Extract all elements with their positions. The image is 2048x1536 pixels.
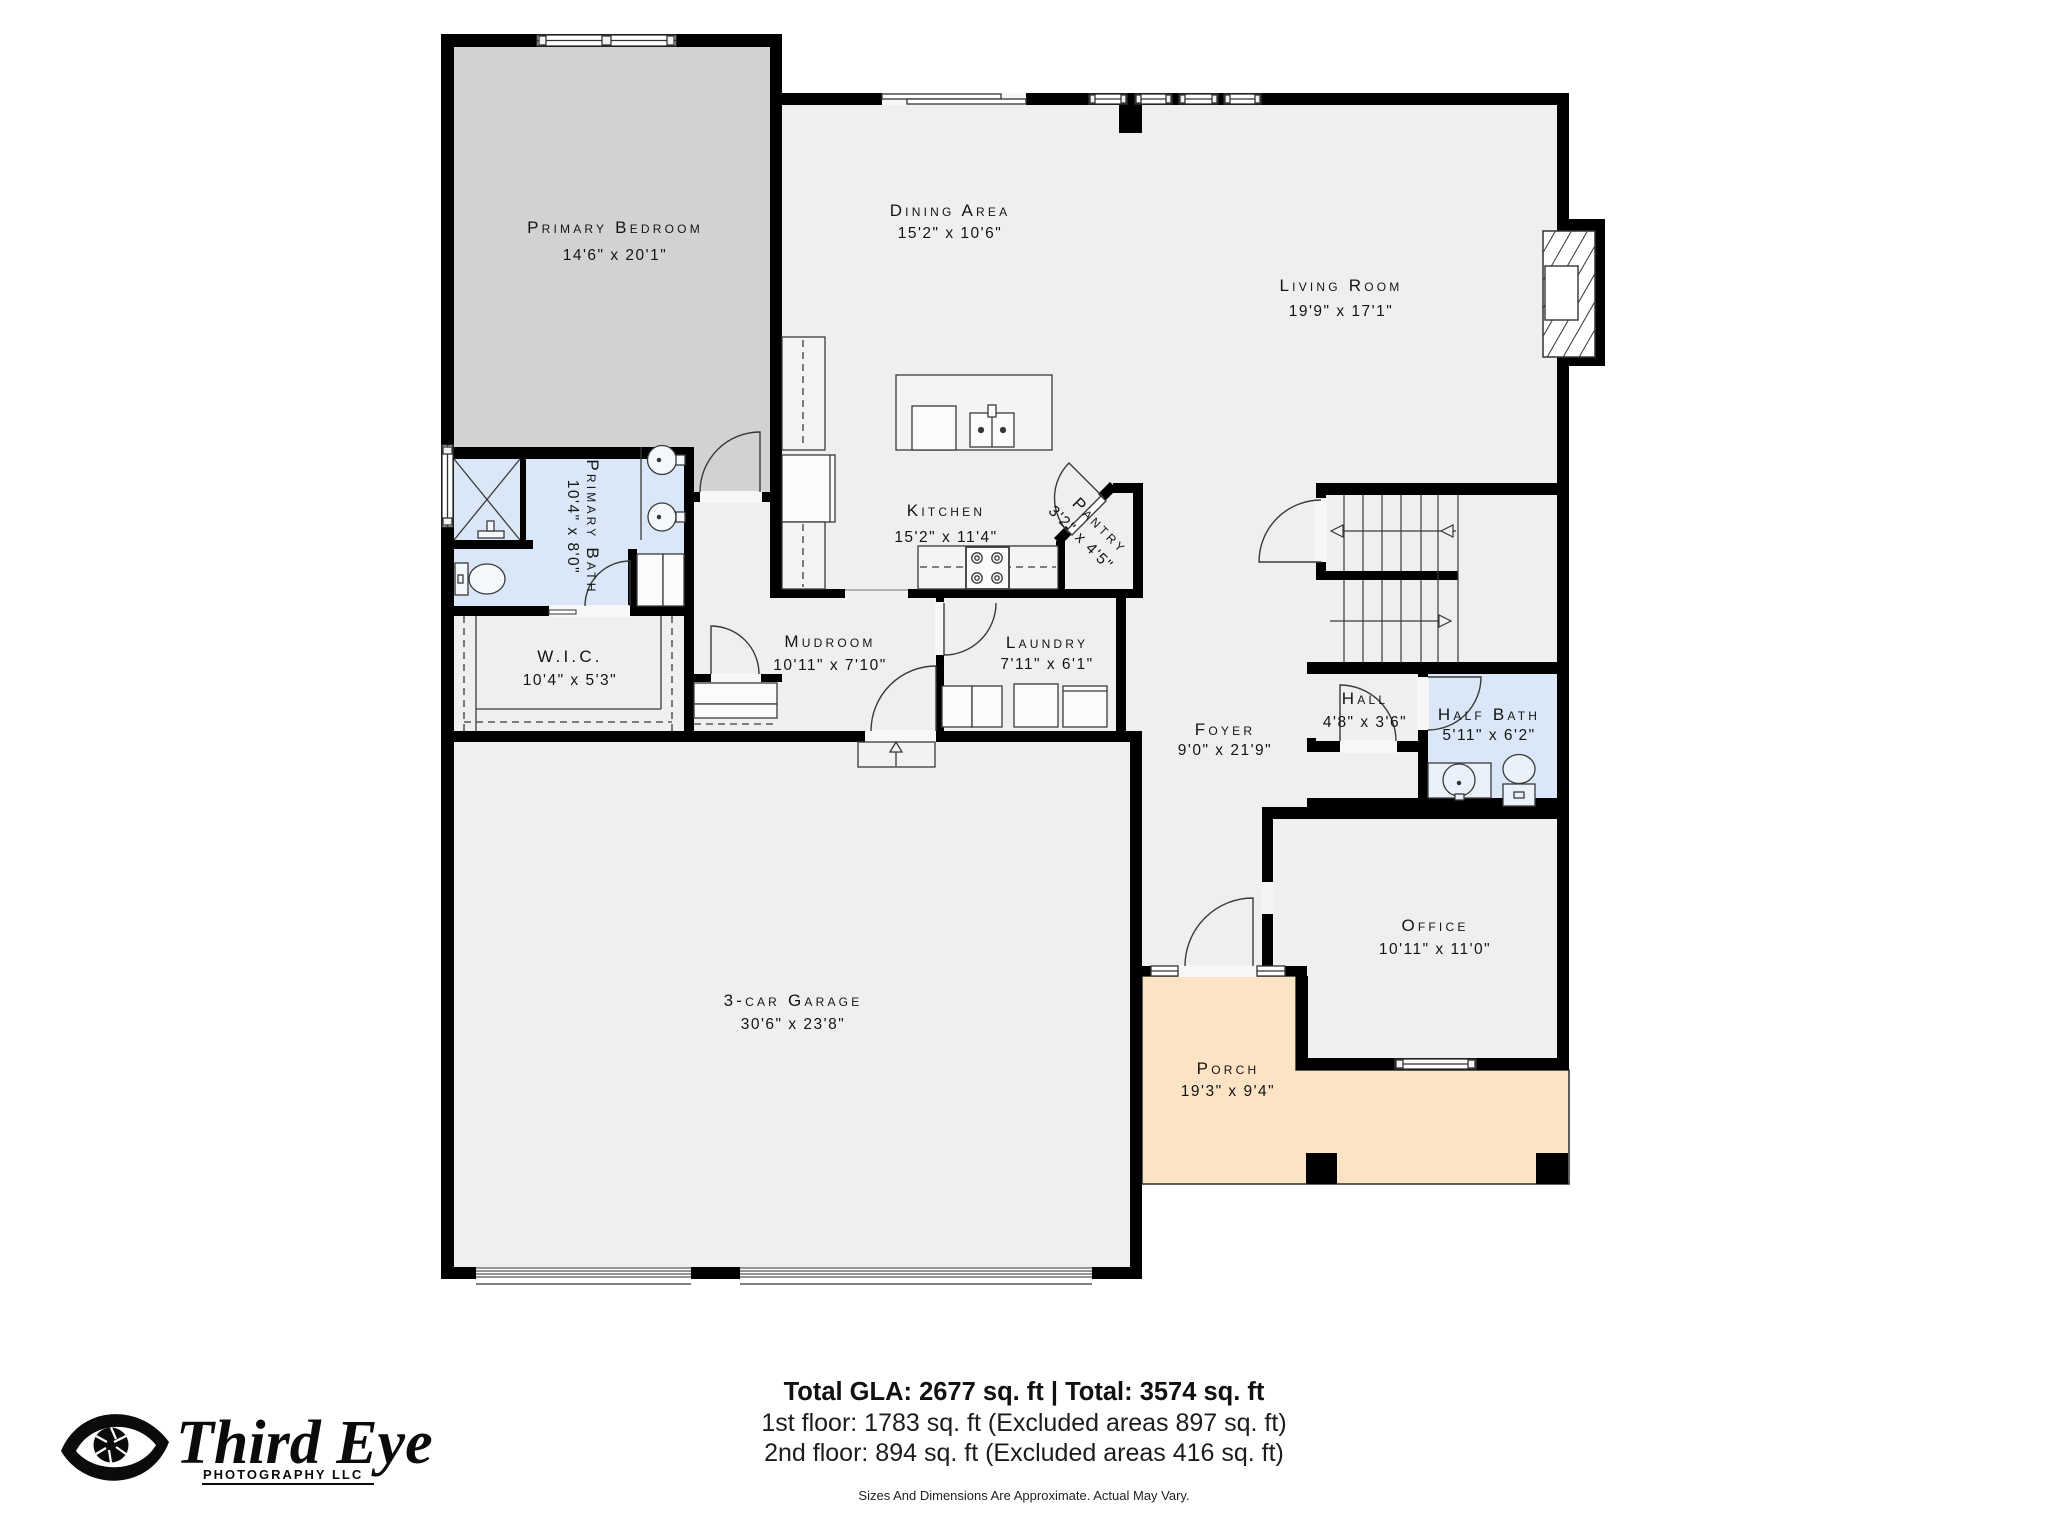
svg-text:7'11" x 6'1": 7'11" x 6'1": [1000, 656, 1093, 673]
svg-text:Sizes And Dimensions Are Appro: Sizes And Dimensions Are Approximate. Ac…: [858, 1488, 1189, 1503]
svg-text:Porch: Porch: [1197, 1059, 1260, 1078]
svg-text:PHOTOGRAPHY LLC: PHOTOGRAPHY LLC: [203, 1467, 363, 1482]
svg-text:9'0" x 21'9": 9'0" x 21'9": [1178, 742, 1272, 759]
svg-text:Primary Bath: Primary Bath: [583, 459, 602, 594]
svg-text:15'2" x 11'4": 15'2" x 11'4": [894, 529, 997, 546]
svg-text:10'11" x 11'0": 10'11" x 11'0": [1379, 941, 1491, 958]
svg-text:Office: Office: [1401, 916, 1468, 935]
svg-text:14'6" x 20'1": 14'6" x 20'1": [563, 247, 668, 264]
svg-text:15'2" x 10'6": 15'2" x 10'6": [898, 225, 1003, 242]
svg-text:10'11" x 7'10": 10'11" x 7'10": [773, 657, 886, 674]
svg-text:Foyer: Foyer: [1195, 720, 1255, 739]
svg-text:2nd floor: 894 sq. ft (Exclude: 2nd floor: 894 sq. ft (Excluded areas 41…: [764, 1439, 1284, 1467]
svg-text:3-car Garage: 3-car Garage: [724, 991, 863, 1010]
svg-text:10'4" x 5'3": 10'4" x 5'3": [523, 672, 617, 689]
svg-text:19'3" x 9'4": 19'3" x 9'4": [1181, 1083, 1275, 1100]
svg-text:5'11" x 6'2": 5'11" x 6'2": [1442, 727, 1535, 744]
svg-text:Living Room: Living Room: [1280, 276, 1403, 295]
svg-text:Hall: Hall: [1342, 689, 1388, 708]
svg-text:Mudroom: Mudroom: [784, 632, 875, 651]
svg-text:30'6" x 23'8": 30'6" x 23'8": [741, 1016, 846, 1033]
svg-text:Total GLA: 2677 sq. ft | Total: Total GLA: 2677 sq. ft | Total: 3574 sq.…: [784, 1378, 1265, 1406]
svg-text:Laundry: Laundry: [1006, 633, 1088, 652]
svg-text:W.I.C.: W.I.C.: [537, 647, 602, 666]
svg-text:19'9" x 17'1": 19'9" x 17'1": [1289, 303, 1394, 320]
svg-text:Half Bath: Half Bath: [1438, 705, 1540, 724]
svg-text:Dining Area: Dining Area: [890, 201, 1011, 220]
svg-text:1st floor: 1783 sq. ft (Exclud: 1st floor: 1783 sq. ft (Excluded areas 8…: [761, 1409, 1286, 1437]
svg-text:4'8" x 3'6": 4'8" x 3'6": [1323, 714, 1407, 731]
svg-text:Primary Bedroom: Primary Bedroom: [527, 218, 703, 237]
svg-text:10'4" x 8'0": 10'4" x 8'0": [564, 480, 581, 574]
svg-text:Kitchen: Kitchen: [907, 501, 985, 520]
